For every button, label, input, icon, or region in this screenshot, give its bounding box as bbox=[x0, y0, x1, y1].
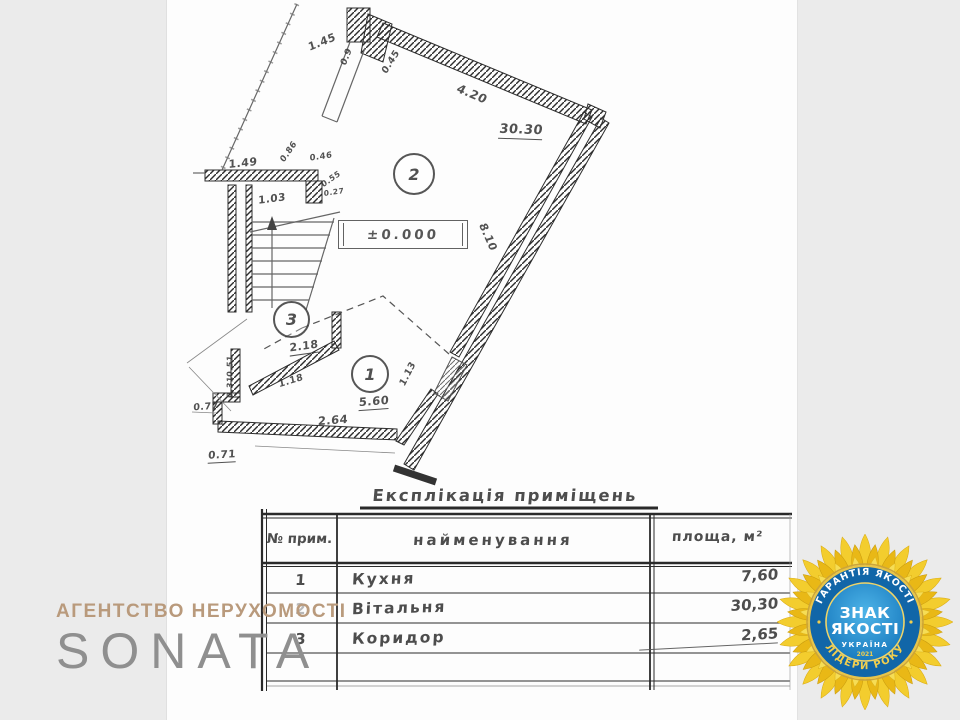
dimension-label: 4.20 bbox=[454, 82, 490, 107]
elevation-mark: ±0.000 bbox=[366, 227, 439, 243]
elevation-mark-box: ±0.000 bbox=[338, 220, 468, 249]
dimension-label: 2.18 bbox=[289, 337, 318, 356]
dimension-label: 0.46 bbox=[309, 150, 332, 163]
ring-dot-left bbox=[817, 620, 820, 623]
col-header-name: найменування bbox=[379, 531, 606, 549]
room-3-circle: 3 bbox=[273, 301, 310, 338]
room-2-number: 2 bbox=[408, 165, 419, 184]
badge-country: УКРАЇНА bbox=[842, 640, 889, 649]
dimension-label: 0.71 bbox=[208, 448, 237, 464]
dimension-label: 0.27 bbox=[324, 186, 345, 198]
dimension-label: 0.9 bbox=[339, 47, 354, 68]
dimension-label: 1.18 bbox=[278, 372, 304, 390]
door-opening bbox=[434, 357, 467, 401]
agency-name-line: АГЕНТСТВО НЕРУХОМОСТІ bbox=[56, 601, 347, 623]
badge-center-line2: ЯКОСТІ bbox=[831, 620, 900, 638]
row-1-number: 1 bbox=[263, 571, 337, 589]
dimension-label: 0.45 bbox=[380, 48, 402, 76]
dimension-label: 1.13 bbox=[398, 360, 419, 389]
dimension-label: 0.77 bbox=[193, 401, 219, 414]
wall-end-cap bbox=[394, 468, 436, 482]
agency-brand: SONATA bbox=[56, 625, 347, 678]
dimension-label: 0.51 bbox=[226, 355, 235, 378]
dimension-label: 5.60 bbox=[359, 393, 390, 411]
room-2-circle: 2 bbox=[393, 153, 435, 195]
room-1-number: 1 bbox=[364, 365, 375, 384]
row-3-area: 2,65 bbox=[639, 624, 779, 650]
table-title: Експлікація приміщень bbox=[372, 486, 639, 505]
row-1-area: 7,60 bbox=[639, 565, 779, 590]
dimension-label: 0.86 bbox=[279, 139, 300, 164]
dimension-label: 30.30 bbox=[498, 122, 544, 140]
col-header-number: № прим. bbox=[262, 531, 336, 547]
dimension-label: 8.10 bbox=[476, 222, 500, 253]
room-3-number: 3 bbox=[286, 310, 297, 329]
badge-year: 2021 bbox=[857, 651, 874, 658]
row-1-name: Кухня bbox=[351, 569, 415, 588]
ring-dot-right bbox=[909, 620, 912, 623]
row-2-name: Вітальня bbox=[352, 598, 447, 618]
stairs-arrow-head bbox=[267, 216, 277, 230]
dimension-label: 1.45 bbox=[307, 30, 338, 53]
dimension-label: 0.31 bbox=[226, 376, 235, 399]
col-header-area: площа, м² bbox=[654, 529, 780, 545]
quality-badge: ГАРАНТІЯ ЯКОСТІ ЛІДЕРИ РОКУ ЗНАК ЯКОСТІ … bbox=[770, 530, 960, 720]
agency-logo: АГЕНТСТВО НЕРУХОМОСТІ SONATA bbox=[56, 601, 347, 678]
row-3-name: Коридор bbox=[351, 628, 446, 648]
dimension-label: 2.64 bbox=[318, 412, 349, 428]
room-1-circle: 1 bbox=[351, 355, 389, 393]
row-2-area: 30,30 bbox=[639, 594, 779, 619]
dimension-label: 1.03 bbox=[258, 191, 286, 206]
dimension-label: 1.49 bbox=[229, 155, 258, 171]
scanned-floor-plan-page: 2 3 1 ±0.000 1.450.90.454.2030.308.101.4… bbox=[0, 0, 960, 720]
